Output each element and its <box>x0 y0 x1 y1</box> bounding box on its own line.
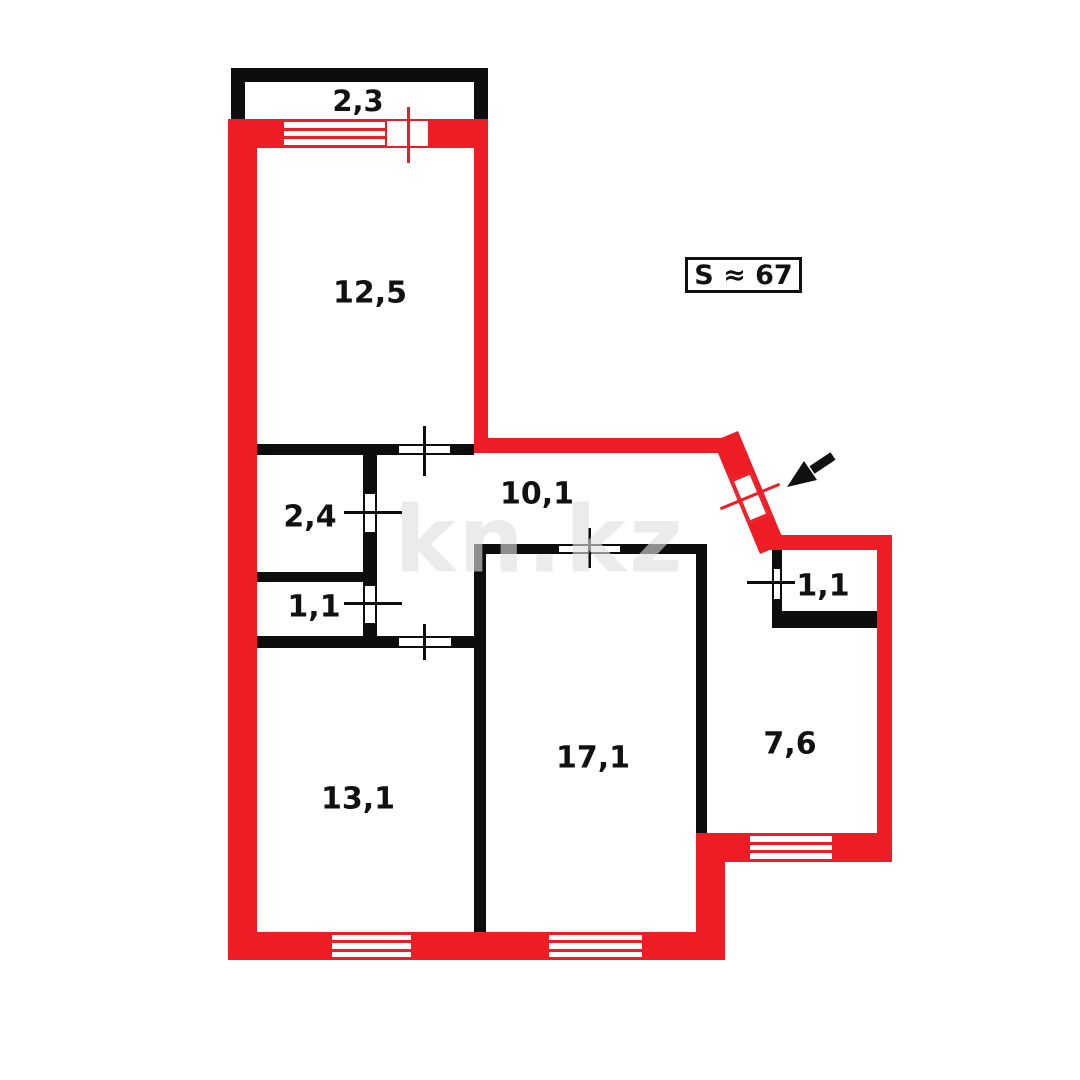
floor-plan: kn.kz 2,3 12,5 2,4 1,1 10,1 13,1 17,1 1,… <box>0 0 1080 1080</box>
entrance-arrow-icon <box>0 0 1080 1080</box>
